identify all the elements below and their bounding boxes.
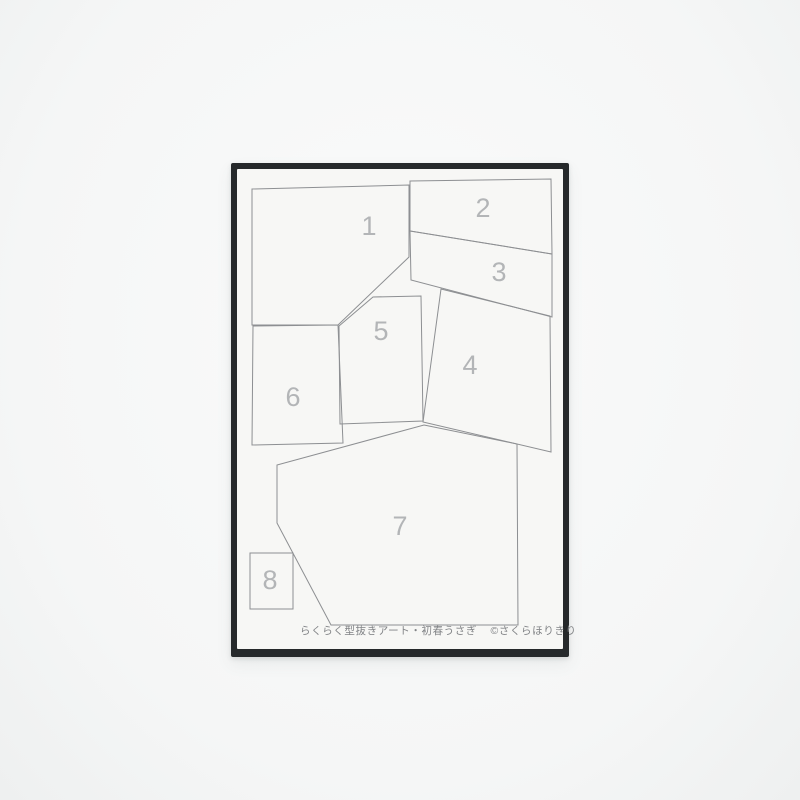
photo-background: 12345678 らくらく型抜きアート・初春うさぎ ©さくらほりきり <box>0 0 800 800</box>
copyright-text: ©さくらほりきり <box>491 625 577 637</box>
footer-caption: らくらく型抜きアート・初春うさぎ ©さくらほりきり <box>300 624 549 638</box>
die-cut-template-card <box>231 163 569 657</box>
product-name-text: らくらく型抜きアート・初春うさぎ <box>300 625 477 637</box>
template-paper <box>237 169 563 649</box>
